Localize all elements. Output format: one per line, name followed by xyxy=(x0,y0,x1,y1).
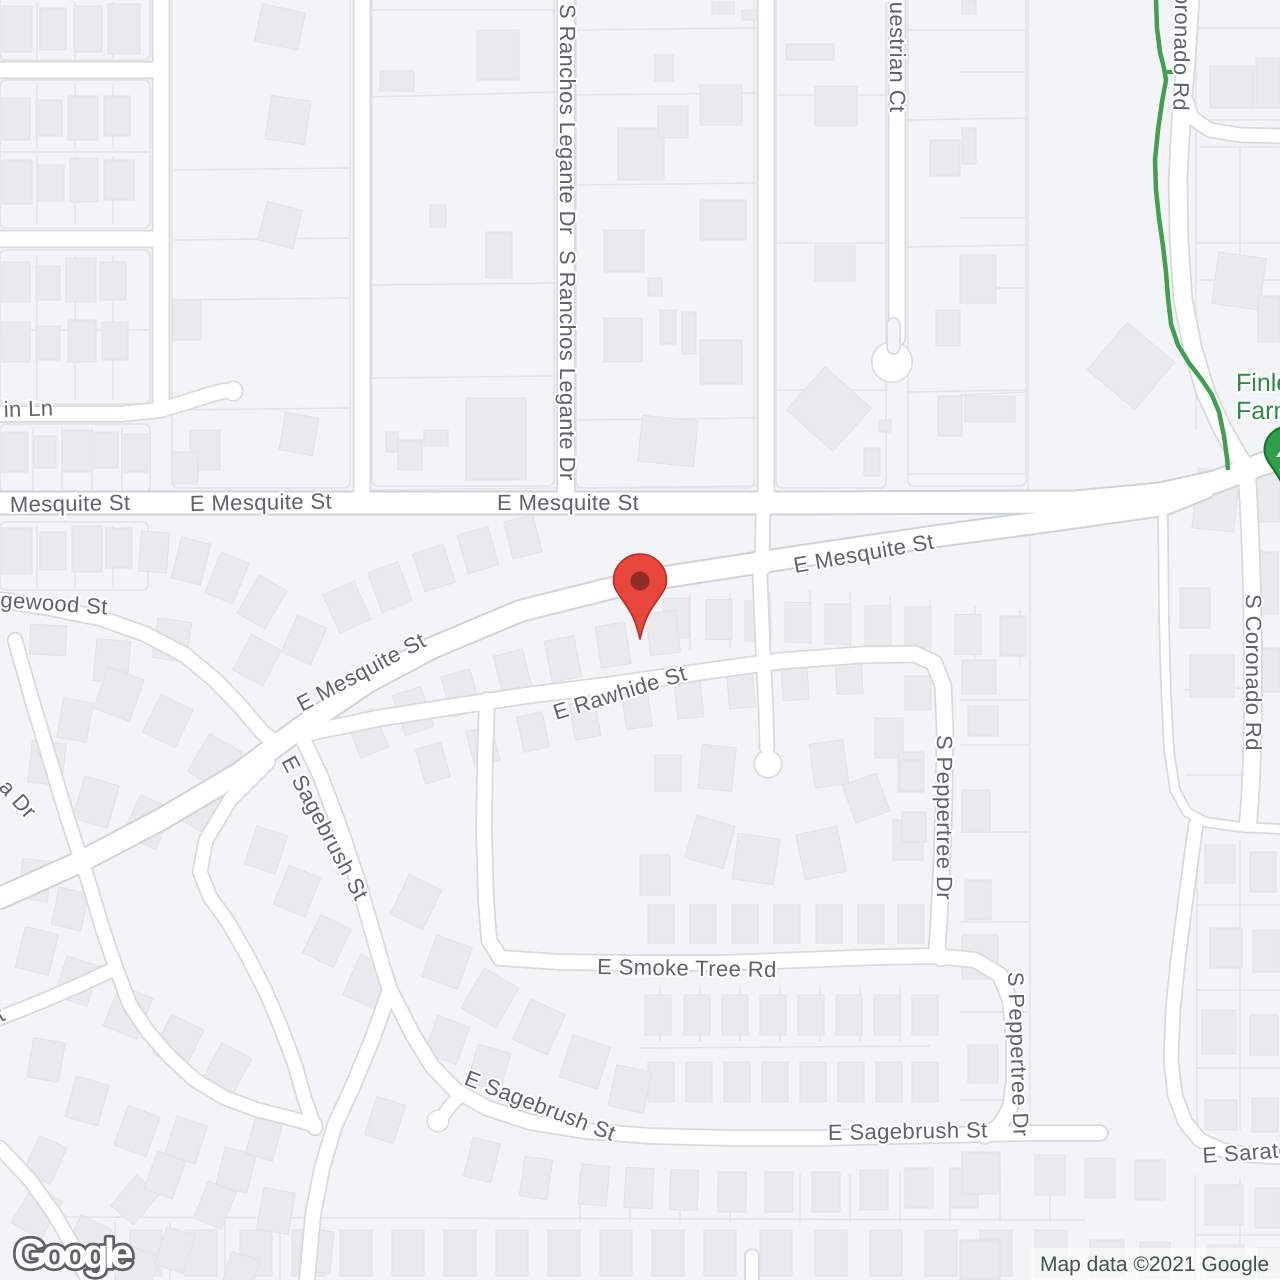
svg-text:E Sagebrush St: E Sagebrush St xyxy=(828,1117,988,1145)
svg-text:E Mesquite St: E Mesquite St xyxy=(497,490,639,515)
svg-text:Map data ©2021 Google: Map data ©2021 Google xyxy=(1040,1253,1269,1276)
svg-text:Equestrian Ct: Equestrian Ct xyxy=(885,0,910,113)
svg-text:S Coronado Rd: S Coronado Rd xyxy=(1241,594,1266,751)
svg-text:in Ln: in Ln xyxy=(3,395,54,422)
svg-text:Mesquite St: Mesquite St xyxy=(10,490,131,517)
svg-text:Finley: Finley xyxy=(1236,369,1280,397)
svg-text:S Peppertree Dr: S Peppertree Dr xyxy=(932,735,957,900)
svg-text:Google: Google xyxy=(14,1230,132,1277)
svg-text:S Ranchos Legante Dr: S Ranchos Legante Dr xyxy=(555,4,580,235)
svg-text:S Coronado Rd: S Coronado Rd xyxy=(1168,0,1196,111)
svg-text:E Mesquite St: E Mesquite St xyxy=(190,489,333,516)
svg-text:E Smoke Tree Rd: E Smoke Tree Rd xyxy=(597,954,777,982)
svg-text:S Ranchos Legante Dr: S Ranchos Legante Dr xyxy=(555,250,580,481)
svg-text:Farms: Farms xyxy=(1236,397,1280,425)
